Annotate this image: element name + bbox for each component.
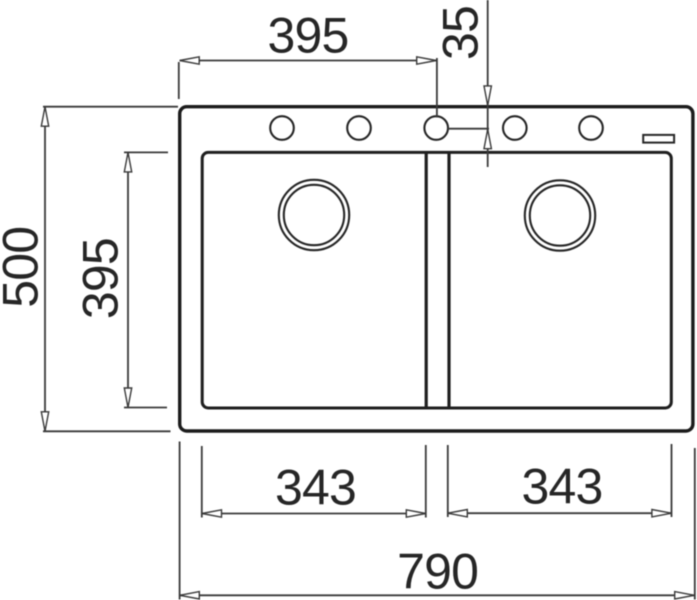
svg-text:395: 395 [73, 238, 129, 319]
svg-text:35: 35 [433, 6, 489, 60]
svg-text:500: 500 [0, 227, 48, 308]
svg-text:343: 343 [521, 459, 602, 515]
svg-text:343: 343 [275, 460, 356, 516]
svg-text:790: 790 [397, 544, 478, 600]
svg-text:395: 395 [267, 8, 348, 64]
